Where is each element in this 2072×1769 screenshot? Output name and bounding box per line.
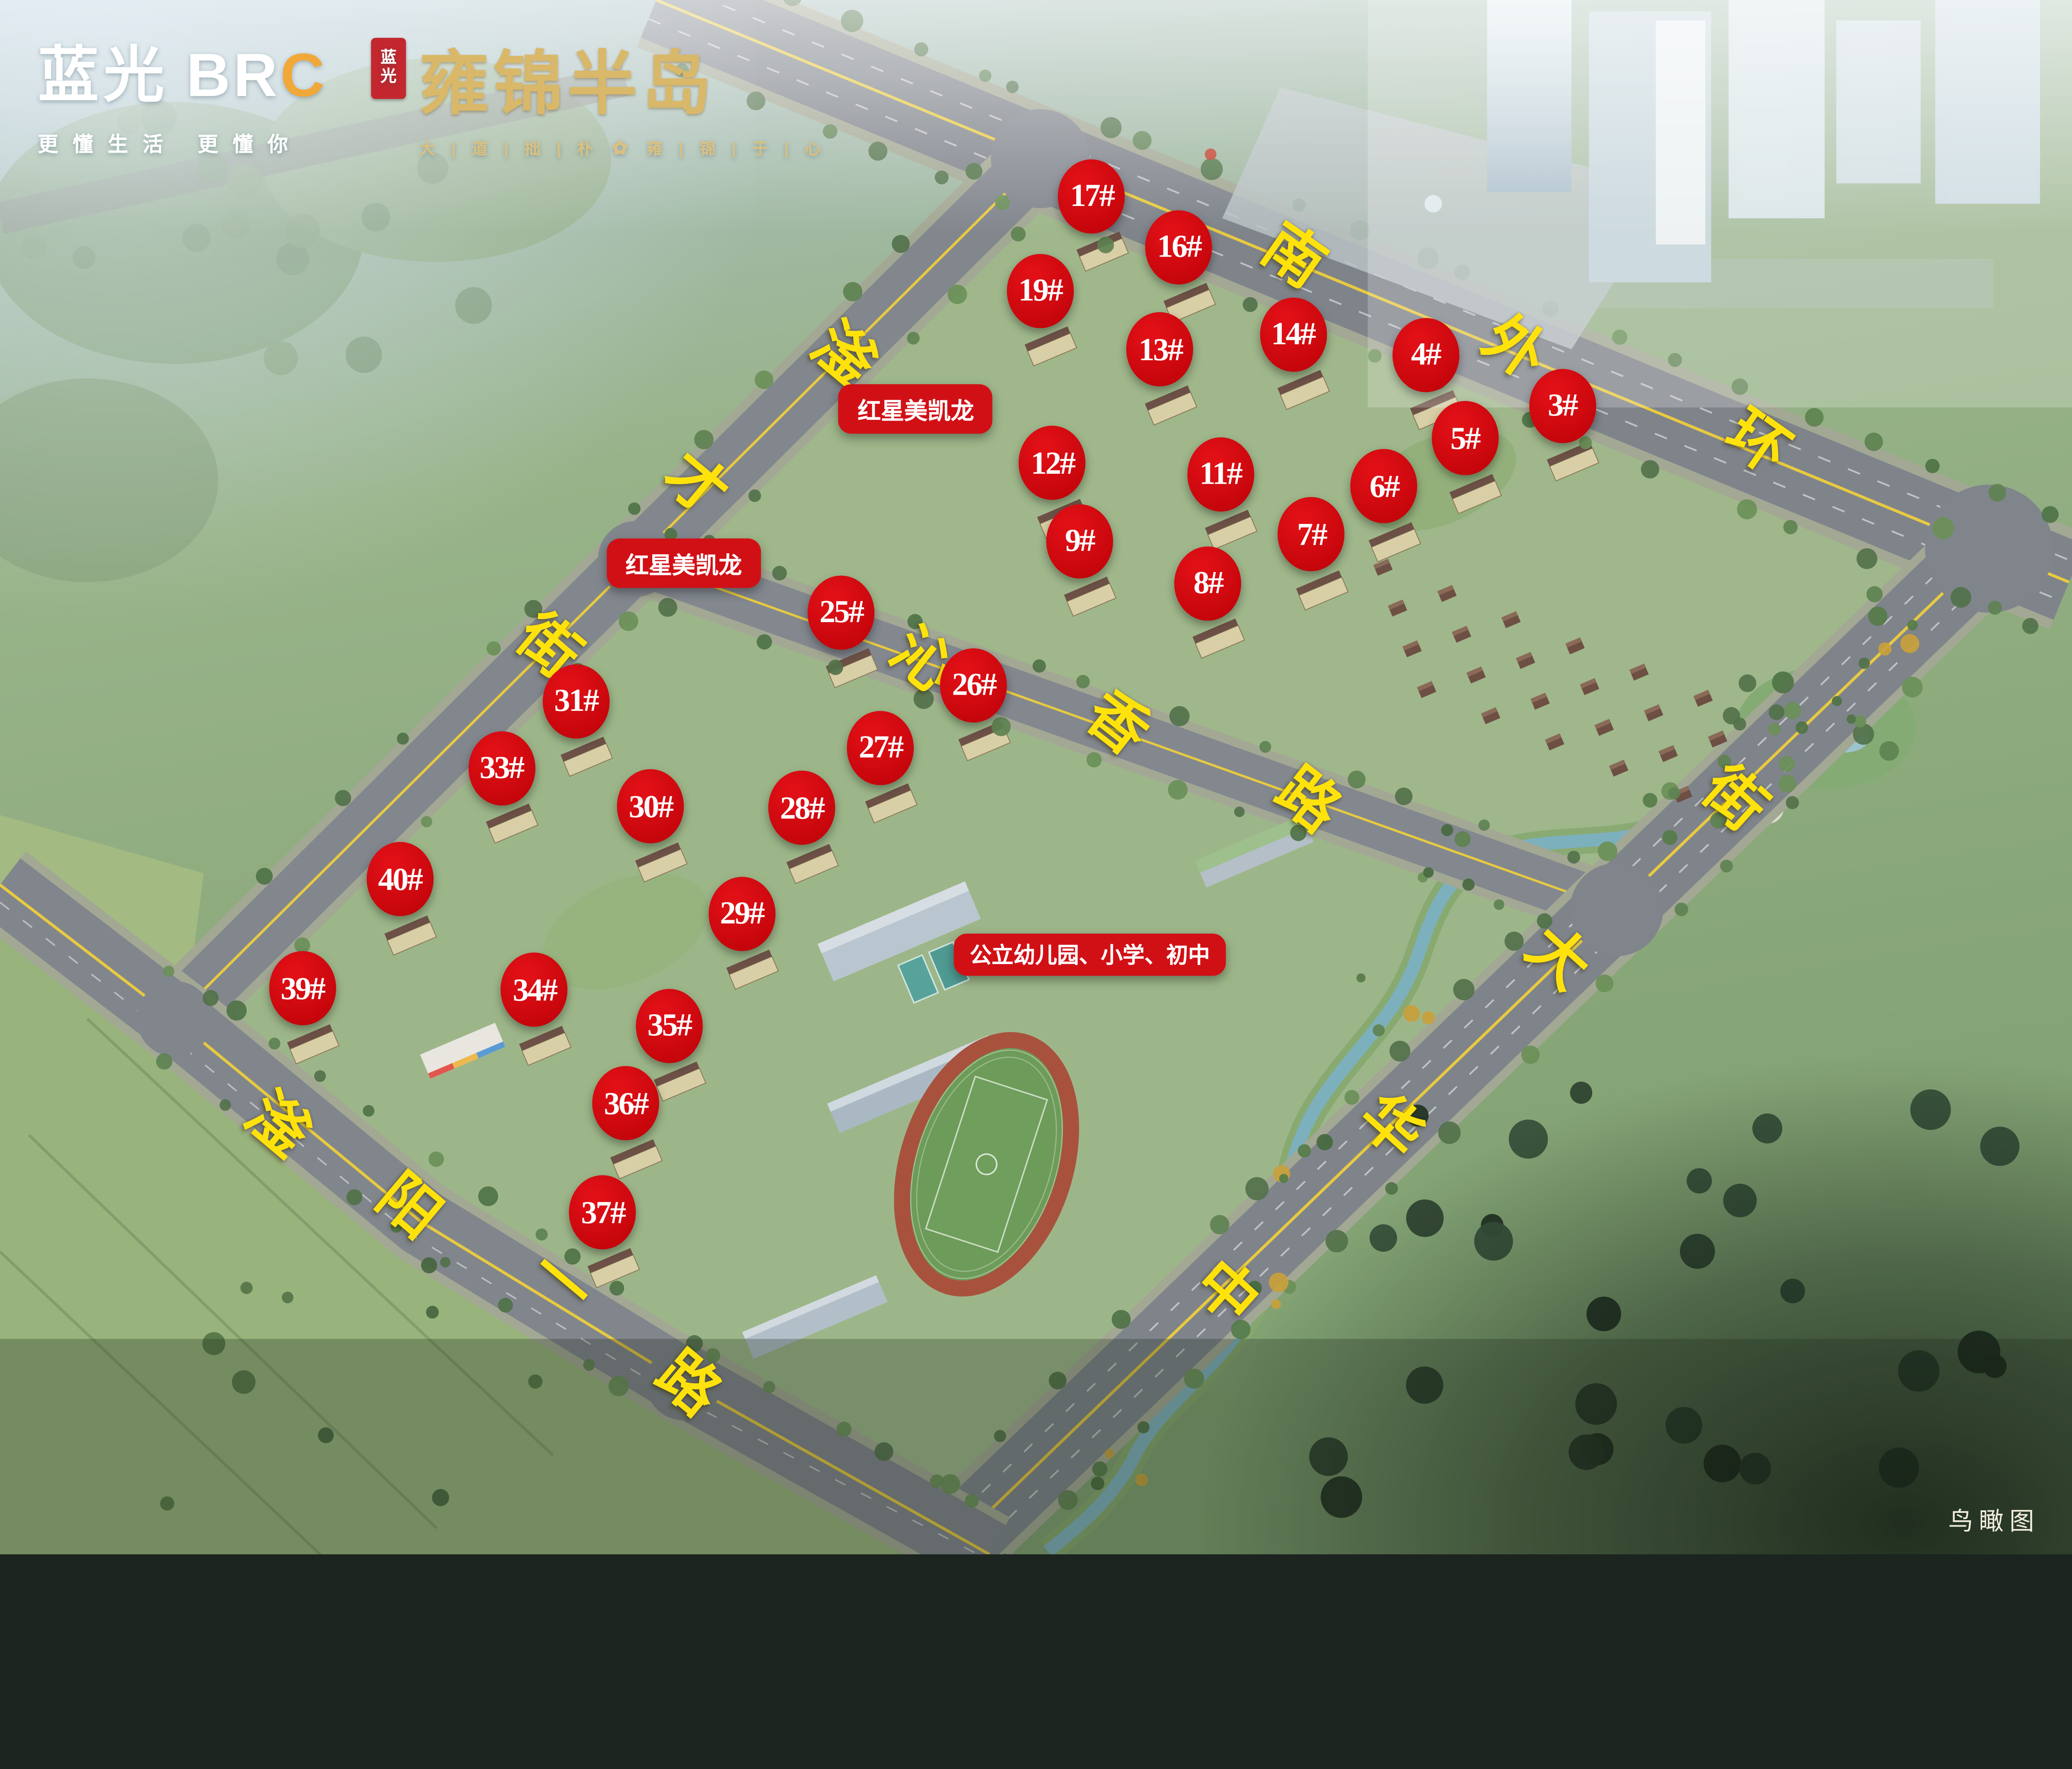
building-marker-label: 26# (952, 666, 995, 704)
building-marker: 39# (269, 951, 336, 1025)
building-marker: 5# (1431, 401, 1498, 475)
building-marker-label: 29# (720, 895, 763, 933)
flower-seal-icon: ✿ (612, 137, 634, 160)
building-marker-label: 25# (819, 594, 863, 631)
building-marker: 7# (1278, 497, 1345, 572)
developer-logo-cn: 蓝光 (38, 26, 169, 115)
building-marker-label: 30# (629, 788, 672, 826)
building-marker: 27# (847, 710, 914, 785)
building-marker-label: 13# (1138, 331, 1182, 368)
building-marker-label: 28# (780, 789, 823, 827)
building-marker: 9# (1046, 504, 1113, 578)
building-marker-label: 14# (1271, 315, 1314, 353)
header-branding: 蓝光 BRC 更懂生活 更懂你 蓝光 雍锦半岛 大 | 道 | 拙 | 朴 ✿ … (38, 26, 826, 160)
view-caption: 鸟瞰图 (1949, 1500, 2040, 1537)
building-marker: 4# (1392, 317, 1459, 391)
poi-label-hongxing-north: 红星美凯龙 (839, 384, 993, 434)
project-slogan: 大 | 道 | 拙 | 朴 ✿ 雍 | 锦 | 于 | 心 (419, 137, 826, 160)
building-marker-label: 9# (1065, 522, 1094, 560)
building-marker-label: 34# (513, 971, 556, 1009)
building-marker-label: 3# (1548, 387, 1577, 424)
building-marker: 29# (708, 877, 775, 951)
building-marker-label: 7# (1297, 516, 1326, 553)
birdseye-rendering: 蓝光 BRC 更懂生活 更懂你 蓝光 雍锦半岛 大 | 道 | 拙 | 朴 ✿ … (0, 0, 2072, 1554)
building-marker: 11# (1187, 437, 1254, 511)
developer-logo-en: BRC (186, 41, 327, 111)
building-marker: 6# (1351, 449, 1418, 523)
building-marker: 36# (592, 1066, 659, 1141)
building-marker: 14# (1259, 297, 1326, 371)
building-marker: 12# (1019, 426, 1086, 500)
building-marker-label: 4# (1411, 335, 1440, 373)
building-marker-label: 6# (1370, 468, 1399, 505)
brc-accent-letter: C (281, 41, 328, 109)
building-marker-label: 33# (479, 749, 523, 787)
building-marker: 34# (501, 953, 568, 1027)
project-logo: 蓝光 雍锦半岛 大 | 道 | 拙 | 朴 ✿ 雍 | 锦 | 于 | 心 (371, 26, 826, 160)
building-marker-label: 36# (604, 1085, 647, 1122)
building-marker: 30# (617, 770, 684, 844)
project-name: 雍锦半岛 (419, 26, 826, 128)
poi-label-hongxing-west: 红星美凯龙 (607, 538, 761, 587)
building-marker: 31# (542, 664, 610, 738)
building-marker-label: 37# (581, 1193, 625, 1231)
building-marker: 13# (1127, 313, 1194, 387)
building-marker: 35# (636, 989, 703, 1063)
building-marker-label: 27# (859, 729, 902, 766)
building-marker-label: 16# (1157, 228, 1201, 266)
building-marker-label: 19# (1018, 272, 1062, 310)
project-seal-icon: 蓝光 (371, 38, 406, 99)
building-marker-label: 31# (554, 682, 598, 720)
building-marker-label: 17# (1070, 177, 1113, 215)
building-marker-label: 12# (1031, 444, 1074, 482)
building-marker: 17# (1058, 159, 1126, 233)
building-marker: 25# (808, 575, 875, 649)
developer-tagline: 更懂生活 更懂你 (38, 130, 327, 159)
building-marker-label: 11# (1199, 455, 1241, 493)
building-marker: 37# (569, 1175, 637, 1249)
building-marker-label: 5# (1450, 419, 1479, 457)
building-marker: 3# (1529, 368, 1596, 443)
building-marker-label: 39# (281, 969, 324, 1007)
building-marker-label: 8# (1193, 564, 1222, 602)
building-marker: 8# (1174, 546, 1242, 620)
building-marker: 40# (366, 843, 433, 917)
building-marker: 16# (1145, 210, 1213, 284)
building-marker: 28# (768, 771, 835, 845)
building-marker-label: 40# (378, 861, 421, 899)
developer-logo: 蓝光 BRC 更懂生活 更懂你 (38, 26, 327, 159)
building-marker: 26# (940, 648, 1007, 722)
building-marker: 19# (1007, 254, 1074, 328)
building-marker: 33# (468, 731, 535, 805)
poi-label-school: 公立幼儿园、小学、初中 (954, 933, 1226, 976)
building-marker-label: 35# (647, 1007, 691, 1044)
